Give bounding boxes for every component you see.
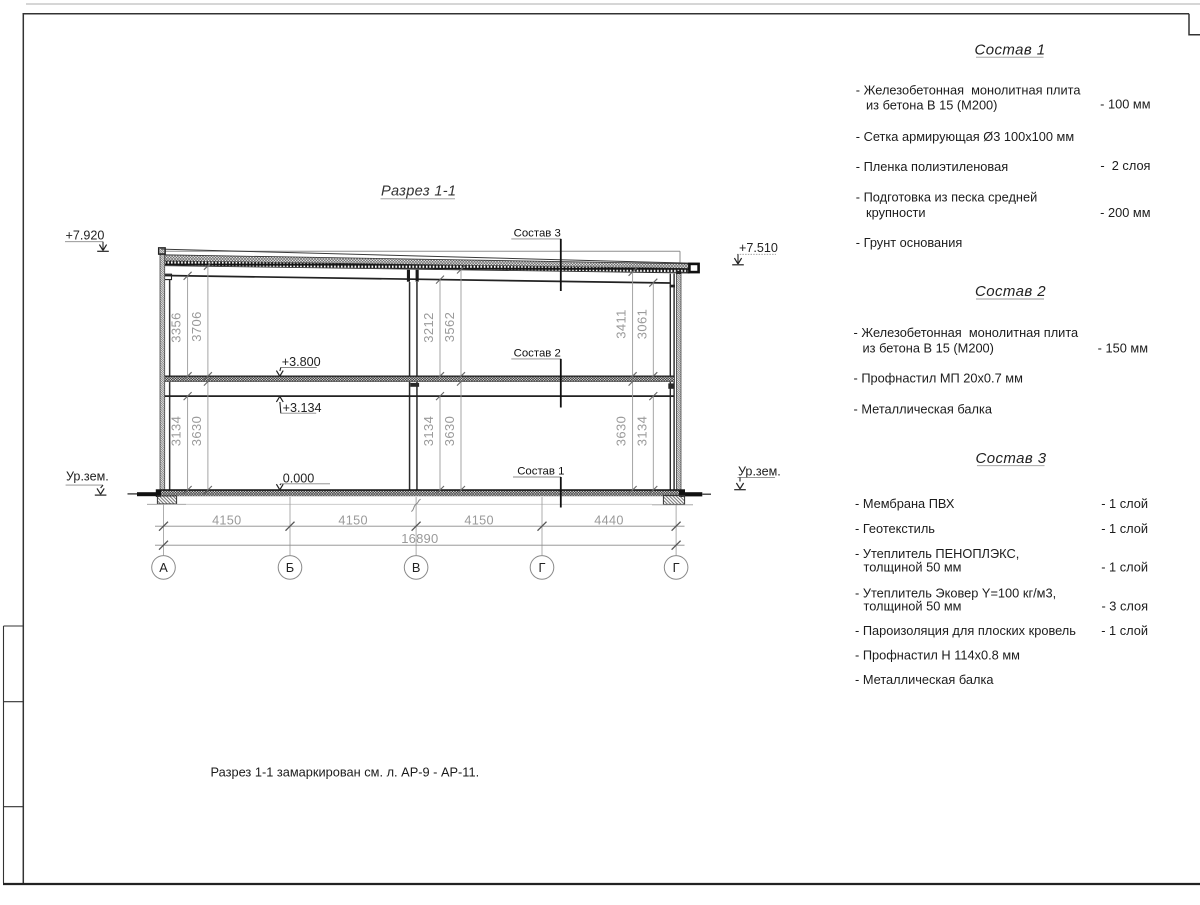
svg-text:В: В <box>412 560 421 575</box>
svg-text:- 150 мм: - 150 мм <box>1098 340 1148 355</box>
svg-text:- Профнастил МП 20х0.7 мм: - Профнастил МП 20х0.7 мм <box>854 371 1023 386</box>
svg-text:Разрез 1-1 замаркирован см. л.: Разрез 1-1 замаркирован см. л. АР-9 - АР… <box>211 765 480 780</box>
svg-text:- Геотекстиль: - Геотекстиль <box>855 521 935 536</box>
svg-text:- Железобетонная монолитная п: - Железобетонная монолитная плита <box>856 82 1082 97</box>
svg-text:4150: 4150 <box>338 513 367 527</box>
svg-text:толщиной 50 мм: толщиной 50 мм <box>864 559 962 574</box>
svg-text:из бетона В 15 (М200): из бетона В 15 (М200) <box>863 340 994 355</box>
svg-text:3061: 3061 <box>634 309 649 340</box>
svg-text:3630: 3630 <box>614 416 629 447</box>
svg-text:3706: 3706 <box>189 311 204 342</box>
svg-text:Ур.зем.: Ур.зем. <box>738 465 781 479</box>
svg-text:3562: 3562 <box>442 312 457 343</box>
svg-text:- 1 слой: - 1 слой <box>1101 623 1148 638</box>
svg-text:- 100 мм: - 100 мм <box>1100 96 1150 111</box>
svg-text:3630: 3630 <box>442 416 457 447</box>
svg-text:4150: 4150 <box>212 513 241 527</box>
svg-text:- Пленка полиэтиленовая: - Пленка полиэтиленовая <box>856 159 1008 174</box>
svg-text:- Профнастил Н 114х0.8 мм: - Профнастил Н 114х0.8 мм <box>855 648 1020 663</box>
svg-text:Состав 1: Состав 1 <box>517 466 564 478</box>
svg-text:3134: 3134 <box>169 416 184 447</box>
svg-text:- Грунт основания: - Грунт основания <box>856 235 963 250</box>
svg-text:3212: 3212 <box>421 312 436 343</box>
svg-text:Разрез 1-1: Разрез 1-1 <box>381 183 456 199</box>
svg-text:- 3 слоя: - 3 слоя <box>1101 598 1148 613</box>
svg-text:Б: Б <box>286 560 294 575</box>
svg-text:- Металлическая балка: - Металлическая балка <box>855 672 994 687</box>
svg-text:+3.800: +3.800 <box>282 355 321 369</box>
svg-text:крупности: крупности <box>866 205 926 220</box>
svg-text:3134: 3134 <box>421 416 436 447</box>
svg-text:Состав 3: Состав 3 <box>514 228 561 240</box>
svg-text:- Пароизоляция для плоских кро: - Пароизоляция для плоских кровель <box>855 623 1076 638</box>
svg-text:4150: 4150 <box>464 513 493 527</box>
svg-text:- Металлическая балка: - Металлическая балка <box>854 402 993 417</box>
svg-text:- Сетка армирующая Ø3 100х100: - Сетка армирующая Ø3 100х100 мм <box>856 129 1074 144</box>
svg-text:- Железобетонная монолитная п: - Железобетонная монолитная плита <box>854 325 1080 340</box>
svg-text:3630: 3630 <box>189 416 204 447</box>
svg-text:- Подготовка из песка средней: - Подготовка из песка средней <box>856 190 1037 205</box>
svg-text:Состав 3: Состав 3 <box>976 450 1047 467</box>
svg-text:0.000: 0.000 <box>283 471 315 485</box>
svg-text:А: А <box>159 560 168 575</box>
svg-text:толщиной 50 мм: толщиной 50 мм <box>864 598 962 613</box>
svg-text:Г: Г <box>539 560 546 575</box>
svg-text:16890: 16890 <box>401 531 438 546</box>
svg-text:- 1 слой: - 1 слой <box>1101 559 1148 574</box>
svg-text:Г: Г <box>673 560 680 575</box>
svg-text:Состав 2: Состав 2 <box>975 283 1046 300</box>
svg-text:Ур.зем.: Ур.зем. <box>66 469 109 483</box>
svg-text:Состав 1: Состав 1 <box>975 41 1046 58</box>
svg-text:- 1 слой: - 1 слой <box>1101 521 1148 536</box>
svg-text:+7.920: +7.920 <box>66 229 105 243</box>
svg-text:Состав 2: Состав 2 <box>514 348 561 360</box>
svg-text:- 1 слой: - 1 слой <box>1101 496 1148 511</box>
svg-text:+7.510: +7.510 <box>739 241 778 255</box>
svg-text:из бетона В 15 (М200): из бетона В 15 (М200) <box>866 98 997 113</box>
svg-text:- 200 мм: - 200 мм <box>1100 205 1150 220</box>
svg-text:3356: 3356 <box>169 312 184 343</box>
svg-text:4440: 4440 <box>594 513 623 527</box>
svg-text:- 2 слоя: - 2 слоя <box>1100 158 1150 173</box>
svg-text:3134: 3134 <box>634 416 649 447</box>
svg-text:3411: 3411 <box>614 309 629 339</box>
svg-text:- Мембрана ПВХ: - Мембрана ПВХ <box>855 496 955 511</box>
